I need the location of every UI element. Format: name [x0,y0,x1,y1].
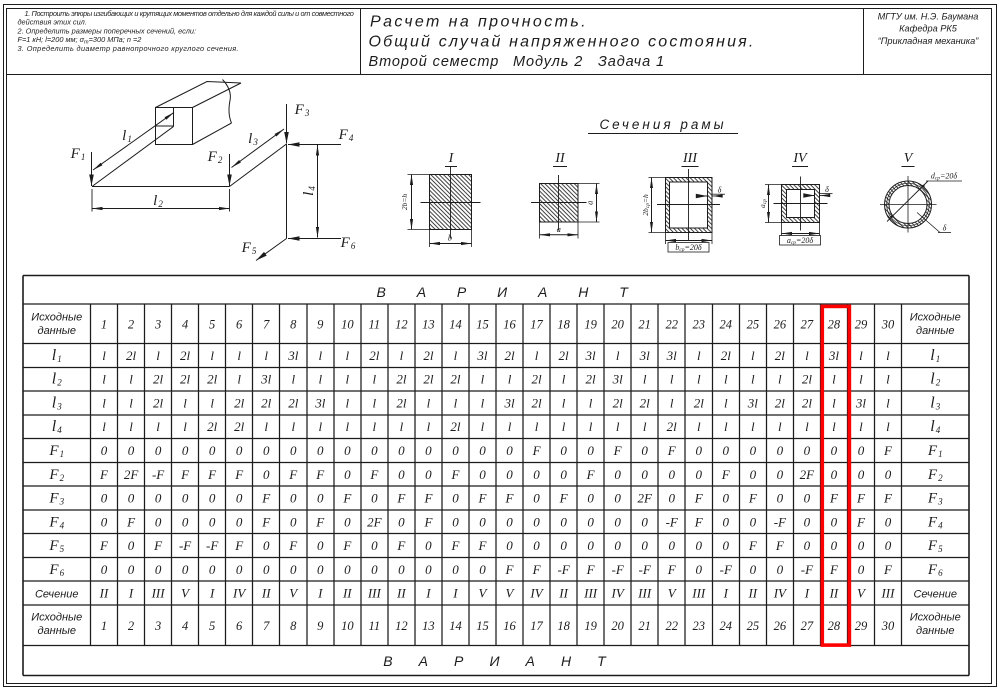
svg-text:2l: 2l [369,348,380,363]
svg-text:IV: IV [773,586,788,601]
svg-text:-F: -F [666,514,679,529]
svg-text:0: 0 [804,514,811,529]
svg-text:0: 0 [668,491,675,506]
svg-text:2l: 2l [802,372,813,387]
svg-text:l: l [156,419,160,434]
svg-text:F: F [478,491,488,506]
svg-text:1: 1 [101,619,107,633]
svg-text:III: III [367,586,382,601]
svg-text:III: III [691,586,706,601]
svg-text:0: 0 [723,538,730,553]
svg-text:II: II [342,586,352,601]
svg-text:F: F [315,514,325,529]
svg-text:21: 21 [638,619,651,633]
svg-text:0: 0 [452,491,459,506]
svg-text:2l: 2l [153,395,164,410]
svg-text:15: 15 [476,318,489,332]
svg-text:a: a [585,201,595,205]
svg-text:aср=20δ: aср=20δ [787,236,814,246]
svg-text:dср=20δ: dср=20δ [931,172,958,182]
svg-text:0: 0 [777,491,784,506]
svg-text:I: I [209,586,215,601]
svg-text:l: l [670,372,674,387]
svg-text:0: 0 [560,467,567,482]
svg-text:l: l [102,348,106,363]
svg-text:5: 5 [209,318,215,332]
svg-text:0: 0 [668,538,675,553]
svg-text:0: 0 [101,562,108,577]
svg-text:Сечение: Сечение [35,589,79,601]
svg-text:l: l [886,419,890,434]
svg-text:F: F [667,443,677,458]
svg-text:l: l [102,395,106,410]
svg-text:0: 0 [182,491,189,506]
svg-text:l: l [670,395,674,410]
svg-text:0: 0 [587,538,594,553]
svg-text:21: 21 [638,318,651,332]
svg-text:F: F [288,467,298,482]
svg-text:данные: данные [916,325,955,337]
svg-text:l: l [318,372,322,387]
svg-text:F: F [423,514,433,529]
svg-text:l: l [129,372,133,387]
svg-text:0: 0 [182,443,189,458]
svg-text:l: l [562,395,566,410]
svg-text:27: 27 [801,318,814,332]
svg-text:0: 0 [101,443,108,458]
svg-text:0: 0 [425,562,432,577]
svg-text:3l: 3l [260,372,272,387]
svg-text:действия этих сил.: действия этих сил. [18,18,87,27]
svg-text:17: 17 [530,619,543,633]
svg-text:19: 19 [584,318,597,332]
svg-text:-F: -F [720,562,733,577]
svg-text:28: 28 [828,619,841,633]
svg-text:0: 0 [723,443,730,458]
svg-text:IV: IV [232,586,247,601]
svg-text:l: l [481,395,485,410]
svg-text:0: 0 [209,562,216,577]
svg-text:F: F [505,491,515,506]
svg-text:0: 0 [398,514,405,529]
svg-text:2F: 2F [367,514,383,529]
svg-text:0: 0 [750,562,757,577]
svg-text:4: 4 [182,619,188,633]
svg-text:0: 0 [479,562,486,577]
svg-text:F: F [532,562,542,577]
svg-text:l: l [237,348,241,363]
svg-text:0: 0 [479,443,486,458]
svg-text:2l: 2l [667,419,678,434]
svg-text:I: I [317,586,323,601]
svg-text:0: 0 [777,562,784,577]
svg-text:I: I [452,586,458,601]
svg-text:0: 0 [831,467,838,482]
svg-text:0: 0 [290,514,297,529]
svg-text:F: F [261,491,271,506]
svg-text:l: l [805,419,809,434]
svg-text:F: F [613,443,623,458]
svg-text:F: F [694,491,704,506]
svg-text:0: 0 [750,467,757,482]
svg-text:0: 0 [398,467,405,482]
svg-text:2F: 2F [637,491,653,506]
svg-text:3l: 3l [476,348,488,363]
svg-text:bср=20δ: bср=20δ [675,243,702,253]
svg-text:0: 0 [317,562,324,577]
svg-text:δ: δ [718,186,722,195]
svg-text:l: l [481,372,485,387]
svg-text:0: 0 [209,491,216,506]
svg-text:3l: 3l [828,348,840,363]
svg-text:0: 0 [371,538,378,553]
svg-text:l: l [751,348,755,363]
svg-text:3l: 3l [666,348,678,363]
svg-text:F: F [721,467,731,482]
svg-text:F: F [478,538,488,553]
svg-text:l: l [535,419,539,434]
svg-text:F: F [234,467,244,482]
svg-text:l: l [724,372,728,387]
svg-text:l: l [373,395,377,410]
svg-text:l: l [427,395,431,410]
svg-text:26: 26 [774,318,787,332]
svg-text:2l: 2l [775,395,786,410]
svg-text:2: 2 [128,318,134,332]
svg-text:0: 0 [425,467,432,482]
svg-text:22: 22 [665,318,678,332]
svg-text:-F: -F [612,562,625,577]
svg-text:0: 0 [696,562,703,577]
svg-text:3l: 3l [585,348,597,363]
svg-text:0: 0 [831,538,838,553]
svg-text:l: l [589,395,593,410]
svg-text:F: F [126,514,136,529]
svg-text:l: l [264,348,268,363]
svg-text:-F: -F [774,514,787,529]
svg-text:0: 0 [506,443,513,458]
svg-text:2l: 2l [531,395,542,410]
svg-text:-F: -F [206,538,219,553]
svg-text:I: I [804,586,810,601]
svg-text:24: 24 [720,318,733,332]
svg-text:0: 0 [750,514,757,529]
svg-text:0: 0 [452,443,459,458]
svg-text:0: 0 [452,562,459,577]
svg-text:F: F [423,491,433,506]
svg-text:2l: 2l [531,372,542,387]
svg-text:2l: 2l [180,372,191,387]
svg-text:30: 30 [881,619,895,633]
svg-text:0: 0 [533,491,540,506]
svg-text:l: l [183,419,187,434]
svg-text:0: 0 [128,491,135,506]
svg-text:l: l [724,419,728,434]
svg-text:0: 0 [641,443,648,458]
svg-text:F: F [99,538,109,553]
svg-text:F: F [586,467,596,482]
svg-text:l: l [724,395,728,410]
svg-text:l: l [589,419,593,434]
svg-text:l: l [508,419,512,434]
svg-text:4: 4 [182,318,188,332]
svg-text:III: III [682,151,698,166]
svg-text:2l: 2l [640,395,651,410]
svg-text:2l: 2l [396,395,407,410]
svg-text:l: l [859,419,863,434]
svg-text:11: 11 [369,619,381,633]
svg-text:0: 0 [831,514,838,529]
svg-text:F: F [342,538,352,553]
svg-text:16: 16 [503,619,516,633]
svg-text:II: II [261,586,271,601]
svg-text:2l: 2l [450,372,461,387]
svg-text:l: l [643,372,647,387]
svg-text:0: 0 [209,514,216,529]
svg-text:0: 0 [560,443,567,458]
svg-text:0: 0 [155,491,162,506]
svg-text:18: 18 [557,619,570,633]
svg-text:l: l [373,372,377,387]
svg-text:0: 0 [696,443,703,458]
svg-text:2l: 2l [775,348,786,363]
svg-text:МГТУ им. Н.Э. Баумана: МГТУ им. Н.Э. Баумана [878,12,979,22]
svg-text:Расчет на прочность.: Расчет на прочность. [370,14,588,31]
svg-text:F: F [829,562,839,577]
svg-text:l: l [427,419,431,434]
svg-text:3: 3 [154,318,161,332]
svg-text:13: 13 [422,619,435,633]
svg-text:F: F [207,467,217,482]
svg-text:0: 0 [750,443,757,458]
svg-text:F: F [450,467,460,482]
svg-text:0: 0 [371,562,378,577]
svg-text:l: l [697,348,701,363]
svg-text:l: l [508,372,512,387]
svg-text:0: 0 [506,467,513,482]
svg-text:l: l [697,372,701,387]
svg-text:23: 23 [693,318,706,332]
svg-text:2l: 2l [234,395,245,410]
svg-text:28: 28 [828,318,841,332]
svg-text:7: 7 [263,619,270,633]
svg-text:16: 16 [503,318,516,332]
svg-text:F: F [99,467,109,482]
svg-text:0: 0 [182,514,189,529]
svg-text:δ: δ [943,224,947,233]
svg-text:2l: 2l [396,372,407,387]
svg-text:2l: 2l [504,348,515,363]
svg-text:b: b [448,233,452,243]
svg-text:0: 0 [344,562,351,577]
svg-text:l: l [346,419,350,434]
svg-text:25: 25 [747,318,760,332]
svg-text:0: 0 [101,491,108,506]
svg-text:0: 0 [290,491,297,506]
svg-text:6: 6 [236,318,243,332]
svg-text:3l: 3l [639,348,651,363]
svg-text:2: 2 [128,619,134,633]
svg-text:l: l [886,395,890,410]
svg-text:F: F [153,538,163,553]
svg-text:l: l [535,348,539,363]
svg-text:данные: данные [37,325,76,337]
svg-text:l: l [318,419,322,434]
svg-text:l: l [616,348,620,363]
svg-text:0: 0 [155,443,162,458]
svg-text:l: l [183,395,187,410]
svg-text:5: 5 [209,619,215,633]
svg-text:l: l [778,419,782,434]
svg-text:l: l [832,395,836,410]
svg-text:I: I [425,586,431,601]
svg-text:9: 9 [317,318,324,332]
svg-text:12: 12 [395,318,408,332]
svg-text:18: 18 [557,318,570,332]
svg-text:0: 0 [614,514,621,529]
svg-text:3. Определить диаметр равно: 3. Определить диаметр равнопрочного круг… [18,44,239,53]
svg-text:F: F [559,491,569,506]
svg-text:F: F [396,538,406,553]
svg-text:F: F [532,443,542,458]
svg-text:0: 0 [236,491,243,506]
svg-text:l: l [237,372,241,387]
svg-text:IV: IV [529,586,544,601]
svg-text:0: 0 [425,538,432,553]
svg-text:2F: 2F [800,467,816,482]
svg-text:F: F [586,562,596,577]
svg-text:0: 0 [641,538,648,553]
svg-text:F: F [883,562,893,577]
svg-text:2l: 2l [613,395,624,410]
svg-text:30: 30 [881,318,895,332]
svg-text:l: l [778,372,782,387]
svg-text:l: l [210,348,214,363]
svg-text:F: F [342,491,352,506]
svg-text:2l: 2l [559,348,570,363]
svg-text:0: 0 [858,443,865,458]
svg-text:2l: 2l [450,419,461,434]
svg-text:0: 0 [641,514,648,529]
svg-text:0: 0 [371,443,378,458]
svg-text:2l: 2l [423,348,434,363]
svg-text:2b=h: 2b=h [400,194,409,211]
svg-text:Исходные: Исходные [910,312,961,324]
svg-text:0: 0 [479,514,486,529]
svg-text:l: l [210,395,214,410]
svg-text:-F: -F [152,467,165,482]
svg-text:0: 0 [452,514,459,529]
svg-text:2l: 2l [153,372,164,387]
svg-text:II: II [829,586,839,601]
svg-text:l: l [373,419,377,434]
svg-text:0: 0 [290,443,297,458]
svg-text:0: 0 [209,443,216,458]
svg-text:0: 0 [560,538,567,553]
svg-text:l: l [562,372,566,387]
svg-text:l: l [400,348,404,363]
svg-text:Исходные: Исходные [31,312,82,324]
svg-text:0: 0 [398,562,405,577]
svg-text:2l: 2l [207,419,218,434]
svg-text:-F: -F [179,538,192,553]
svg-text:l: l [616,419,620,434]
svg-text:l: l [291,419,295,434]
svg-text:6: 6 [236,619,243,633]
svg-text:0: 0 [182,562,189,577]
svg-text:II: II [554,151,566,166]
svg-text:2l: 2l [288,395,299,410]
svg-text:24: 24 [720,619,733,633]
svg-text:l: l [805,348,809,363]
svg-text:26: 26 [774,619,787,633]
svg-text:0: 0 [479,467,486,482]
svg-text:0: 0 [317,491,324,506]
svg-text:20: 20 [611,318,624,332]
svg-text:F: F [505,562,515,577]
svg-text:Исходные: Исходные [910,612,961,624]
svg-text:0: 0 [155,514,162,529]
svg-text:данные: данные [37,625,76,637]
svg-text:0: 0 [668,467,675,482]
svg-text:0: 0 [858,562,865,577]
svg-text:14: 14 [449,619,462,633]
svg-text:l: l [129,395,133,410]
svg-text:данные: данные [916,625,955,637]
svg-text:3l: 3l [287,348,299,363]
svg-text:l: l [832,372,836,387]
svg-text:0: 0 [723,491,730,506]
svg-text:19: 19 [584,619,597,633]
svg-text:Второй семестрМодуль 2Задача 1: Второй семестрМодуль 2Задача 1 [369,54,665,70]
svg-text:0: 0 [560,514,567,529]
svg-text:l: l [751,372,755,387]
svg-text:7: 7 [263,318,270,332]
svg-text:0: 0 [317,443,324,458]
svg-text:0: 0 [533,467,540,482]
svg-text:15: 15 [476,619,489,633]
svg-text:Общий случай напряженного сост: Общий случай напряженного состояния. [369,34,756,51]
svg-text:0: 0 [533,514,540,529]
svg-text:2F: 2F [124,467,140,482]
svg-text:0: 0 [614,538,621,553]
svg-text:δ: δ [825,185,829,194]
svg-text:l: l [291,372,295,387]
svg-text:F: F [667,562,677,577]
svg-text:0: 0 [831,443,838,458]
svg-text:F: F [748,491,758,506]
svg-text:II: II [747,586,757,601]
svg-text:0: 0 [858,467,865,482]
svg-text:0: 0 [804,443,811,458]
svg-text:F: F [261,514,271,529]
svg-text:0: 0 [804,538,811,553]
svg-text:3l: 3l [503,395,515,410]
svg-text:23: 23 [693,619,706,633]
svg-text:8: 8 [290,619,297,633]
svg-text:0: 0 [128,443,135,458]
svg-text:8: 8 [290,318,297,332]
svg-text:“Прикладная механика”: “Прикладная механика” [878,36,979,46]
svg-text:0: 0 [263,538,270,553]
svg-text:F: F [288,538,298,553]
svg-text:0: 0 [885,467,892,482]
svg-text:10: 10 [341,318,354,332]
svg-text:F: F [856,514,866,529]
svg-text:27: 27 [801,619,814,633]
svg-text:F: F [396,491,406,506]
svg-text:2l: 2l [180,348,191,363]
